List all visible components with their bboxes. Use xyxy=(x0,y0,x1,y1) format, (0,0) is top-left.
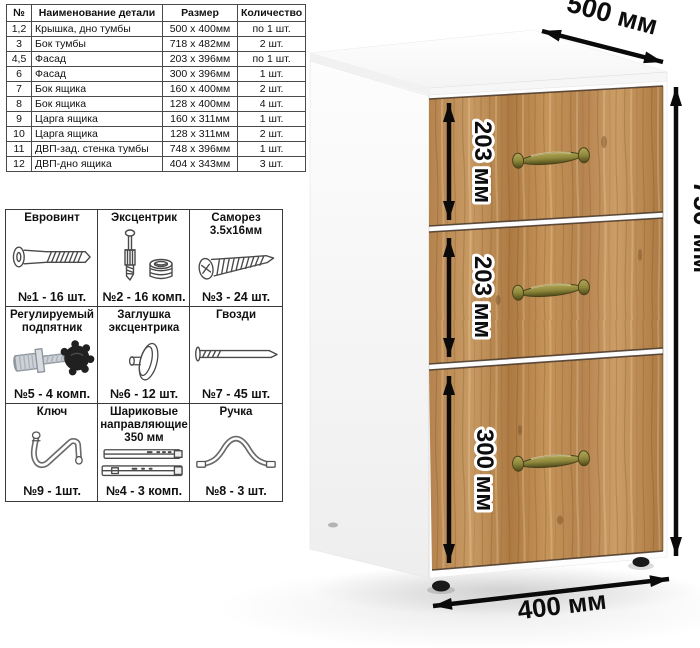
hardware-item-key: Ключ №9 - 1шт. xyxy=(5,403,99,502)
part-name-cell: Бок тумбы xyxy=(32,37,163,52)
part-size-cell: 748 x 396мм xyxy=(163,142,238,157)
parts-table: № Наименование детали Размер Количество … xyxy=(6,4,306,172)
nail-icon xyxy=(193,322,279,387)
cam-cover-icon xyxy=(116,335,172,387)
table-row: 10 Царга ящика 128 x 311мм 2 шт. xyxy=(7,127,306,142)
part-qty-cell: 3 шт. xyxy=(238,157,306,172)
part-qty-cell: по 1 шт. xyxy=(238,22,306,37)
drawer-fronts xyxy=(429,86,663,570)
table-row: 3 Бок тумбы 718 x 482мм 2 шт. xyxy=(7,37,306,52)
part-name-cell: Царга ящика xyxy=(32,127,163,142)
part-qty-cell: 2 шт. xyxy=(238,127,306,142)
hardware-count: №7 - 45 шт. xyxy=(202,387,270,401)
hardware-title: Шариковые направляющие 350 мм xyxy=(100,406,188,445)
hardware-count: №8 - 3 шт. xyxy=(205,484,266,498)
table-row: 4,5 Фасад 203 x 396мм по 1 шт. xyxy=(7,52,306,67)
part-number-cell: 7 xyxy=(7,82,32,97)
hardware-title: Евровинт xyxy=(24,212,80,225)
part-number-cell: 1,2 xyxy=(7,22,32,37)
part-size-cell: 128 x 311мм xyxy=(163,127,238,142)
table-row: 6 Фасад 300 x 396мм 1 шт. xyxy=(7,67,306,82)
part-size-cell: 160 x 311мм xyxy=(163,112,238,127)
assembly-instruction-sheet: 500 мм 750 мм 400 мм 203 мм 203 мм 300 м… xyxy=(0,0,700,648)
hardware-title: Ручка xyxy=(220,406,253,419)
table-row: 8 Бок ящика 128 x 400мм 4 шт. xyxy=(7,97,306,112)
part-size-cell: 203 x 396мм xyxy=(163,52,238,67)
part-name-cell: Царга ящика xyxy=(32,112,163,127)
part-size-cell: 300 x 396мм xyxy=(163,67,238,82)
hardware-item-handle: Ручка №8 - 3 шт. xyxy=(189,403,283,502)
part-number-cell: 9 xyxy=(7,112,32,127)
table-row: 7 Бок ящика 160 x 400мм 2 шт. xyxy=(7,82,306,97)
drawer-top-dimension-label: 203 мм xyxy=(469,121,496,203)
hardware-item-ball-slides: Шариковые направляющие 350 мм №4 - 3 ком… xyxy=(97,403,191,502)
col-header-quantity: Количество xyxy=(238,5,306,22)
hardware-count: №6 - 12 шт. xyxy=(110,387,178,401)
height-dimension-label: 750 мм xyxy=(688,181,700,274)
col-header-name: Наименование детали xyxy=(32,5,163,22)
table-row: 12 ДВП-дно ящика 404 x 343мм 3 шт. xyxy=(7,157,306,172)
hardware-item-euro-screw: Евровинт №1 - 16 шт. xyxy=(5,209,99,308)
hardware-item-cam-cover: Заглушка эксцентрика №6 - 12 шт. xyxy=(97,306,191,405)
hardware-title: Эксцентрик xyxy=(111,212,177,225)
part-number-cell: 4,5 xyxy=(7,52,32,67)
col-header-size: Размер xyxy=(163,5,238,22)
part-size-cell: 128 x 400мм xyxy=(163,97,238,112)
ball-slides-icon xyxy=(100,445,188,484)
part-number-cell: 11 xyxy=(7,142,32,157)
hardware-grid: Евровинт №1 - 16 шт. Эксцентрик xyxy=(6,210,282,501)
hardware-item-adjustable-foot: Регулируемый подпятник xyxy=(5,306,99,405)
hardware-title: Регулируемый подпятник xyxy=(8,309,96,335)
hardware-count: №2 - 16 комп. xyxy=(102,290,185,304)
table-row: 9 Царга ящика 160 x 311мм 1 шт. xyxy=(7,112,306,127)
part-qty-cell: 1 шт. xyxy=(238,142,306,157)
hex-key-icon xyxy=(14,419,90,484)
part-number-cell: 12 xyxy=(7,157,32,172)
euro-screw-icon xyxy=(11,225,93,290)
hardware-count: №4 - 3 комп. xyxy=(106,484,182,498)
col-header-number: № xyxy=(7,5,32,22)
hardware-title: Саморез 3.5х16мм xyxy=(192,212,280,238)
part-qty-cell: 1 шт. xyxy=(238,112,306,127)
part-name-cell: Бок ящика xyxy=(32,97,163,112)
hardware-title: Заглушка эксцентрика xyxy=(100,309,188,335)
hardware-item-self-tapping-screw: Саморез 3.5х16мм №3 - 24 шт. xyxy=(189,209,283,308)
part-size-cell: 160 x 400мм xyxy=(163,82,238,97)
part-name-cell: Фасад xyxy=(32,67,163,82)
part-number-cell: 8 xyxy=(7,97,32,112)
hardware-item-cam-lock: Эксцентрик №2 - 16 комп. xyxy=(97,209,191,308)
part-name-cell: Бок ящика xyxy=(32,82,163,97)
part-name-cell: Фасад xyxy=(32,52,163,67)
part-number-cell: 3 xyxy=(7,37,32,52)
part-qty-cell: 1 шт. xyxy=(238,67,306,82)
hardware-count: №1 - 16 шт. xyxy=(18,290,86,304)
cam-lock-icon xyxy=(104,225,184,290)
bow-handle-icon xyxy=(193,419,279,484)
part-qty-cell: 2 шт. xyxy=(238,82,306,97)
hardware-count: №5 - 4 комп. xyxy=(14,387,90,401)
adjustable-foot-icon xyxy=(9,335,95,387)
part-number-cell: 6 xyxy=(7,67,32,82)
hardware-count: №9 - 1шт. xyxy=(23,484,81,498)
hardware-item-nails: Гвозди №7 - 45 шт. xyxy=(189,306,283,405)
hardware-count: №3 - 24 шт. xyxy=(202,290,270,304)
part-size-cell: 500 x 400мм xyxy=(163,22,238,37)
part-name-cell: ДВП-дно ящика xyxy=(32,157,163,172)
self-tapping-screw-icon xyxy=(195,238,277,290)
part-number-cell: 10 xyxy=(7,127,32,142)
part-size-cell: 718 x 482мм xyxy=(163,37,238,52)
cabinet-side-panel xyxy=(310,61,429,578)
part-qty-cell: 4 шт. xyxy=(238,97,306,112)
drawer-middle-dimension-label: 203 мм xyxy=(469,256,496,338)
table-header-row: № Наименование детали Размер Количество xyxy=(7,5,306,22)
hardware-title: Ключ xyxy=(37,406,67,419)
width-dimension-label: 500 мм xyxy=(564,0,661,41)
hardware-title: Гвозди xyxy=(216,309,256,322)
part-qty-cell: по 1 шт. xyxy=(238,52,306,67)
part-size-cell: 404 x 343мм xyxy=(163,157,238,172)
table-row: 11 ДВП-зад. стенка тумбы 748 x 396мм 1 ш… xyxy=(7,142,306,157)
cabinet-shadow xyxy=(310,564,700,616)
drawer-bottom-dimension-label: 300 мм xyxy=(471,429,498,511)
part-qty-cell: 2 шт. xyxy=(238,37,306,52)
part-name-cell: ДВП-зад. стенка тумбы xyxy=(32,142,163,157)
table-row: 1,2 Крышка, дно тумбы 500 x 400мм по 1 ш… xyxy=(7,22,306,37)
part-name-cell: Крышка, дно тумбы xyxy=(32,22,163,37)
